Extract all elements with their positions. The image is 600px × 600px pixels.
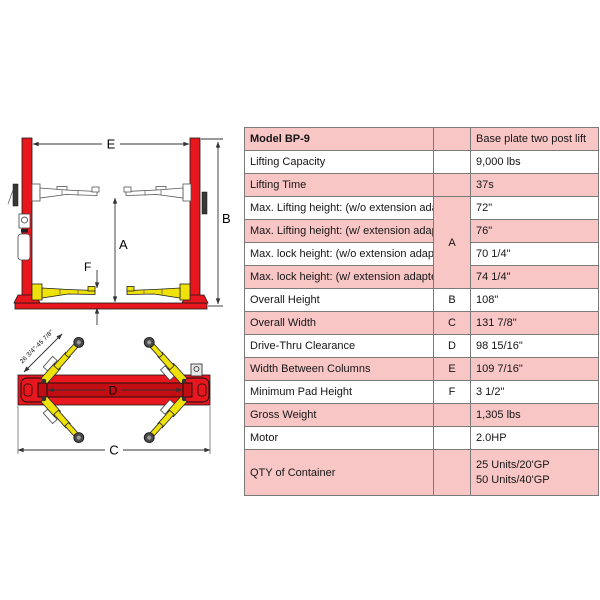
spec-label-cell: Max. Lifting height: (w/o extension adap… <box>245 197 434 220</box>
right-pad-raised <box>124 187 131 192</box>
top-view-drawing: D C 26 3/4"-45 7/8" <box>18 329 210 458</box>
right-carriage-lowered <box>180 284 190 300</box>
base-plate <box>15 303 207 309</box>
spec-ref-cell-a: A <box>434 197 471 289</box>
spec-label-cell: Max. Lifting height: (w/ extension adapt… <box>245 220 434 243</box>
spec-value-cell: 9,000 lbs <box>471 151 599 174</box>
table-row: Width Between Columns E 109 7/16" <box>245 358 599 381</box>
table-row: Minimum Pad Height F 3 1/2" <box>245 381 599 404</box>
power-unit-top-view <box>191 364 202 376</box>
spec-label-cell: Overall Height <box>245 289 434 312</box>
spec-value-cell: 2.0HP <box>471 427 599 450</box>
spec-value-cell: 25 Units/20'GP 50 Units/40'GP <box>471 450 599 496</box>
spec-value-cell: 131 7/8" <box>471 312 599 335</box>
table-row: Lifting Time 37s <box>245 174 599 197</box>
left-arm-raised <box>40 188 97 198</box>
dim-label-c: C <box>109 443 118 458</box>
dimension-a: A <box>115 198 128 302</box>
dim-label-d: D <box>109 384 118 398</box>
qty-line-2: 50 Units/40'GP <box>476 473 593 488</box>
dimension-b: B <box>201 139 231 306</box>
table-row: Max. Lifting height: (w/o extension adap… <box>245 197 599 220</box>
control-box <box>19 214 30 228</box>
lowered-arms <box>32 284 190 300</box>
spec-ref-cell <box>434 174 471 197</box>
spec-ref-cell: C <box>434 312 471 335</box>
spec-label-cell: Overall Width <box>245 312 434 335</box>
left-arm-lowered <box>42 288 95 298</box>
spec-ref-cell <box>434 151 471 174</box>
model-name-cell: Model BP-9 <box>245 128 434 151</box>
dim-label-b: B <box>222 211 231 226</box>
spec-label-cell: Minimum Pad Height <box>245 381 434 404</box>
spec-value-cell: 76" <box>471 220 599 243</box>
table-row-header: Model BP-9 Base plate two post lift <box>245 128 599 151</box>
right-carriage-raised <box>183 184 191 201</box>
control-box-connector <box>21 229 28 233</box>
table-row: Lifting Capacity 9,000 lbs <box>245 151 599 174</box>
qty-line-1: 25 Units/20'GP <box>476 458 593 473</box>
right-arm-raised <box>126 188 183 198</box>
spec-value-cell: 37s <box>471 174 599 197</box>
front-view-drawing: E B A F <box>8 137 231 326</box>
spec-ref-cell <box>434 450 471 496</box>
spec-label-cell: Lifting Capacity <box>245 151 434 174</box>
table-row: Drive-Thru Clearance D 98 15/16" <box>245 335 599 358</box>
right-column-pad <box>202 192 207 214</box>
power-unit-motor <box>18 234 30 260</box>
table-row: Motor 2.0HP <box>245 427 599 450</box>
dim-label-f: F <box>84 260 91 274</box>
table-row: Max. Lifting height: (w/ extension adapt… <box>245 220 599 243</box>
spec-ref-cell: F <box>434 381 471 404</box>
spec-label-cell: Width Between Columns <box>245 358 434 381</box>
spec-label-cell: Max. lock height: (w/ extension adapter) <box>245 266 434 289</box>
raised-arms <box>32 184 191 201</box>
spec-ref-cell <box>434 404 471 427</box>
model-type-cell: Base plate two post lift <box>471 128 599 151</box>
spec-ref-cell: E <box>434 358 471 381</box>
dimension-e: E <box>33 137 189 152</box>
spec-value-cell: 108" <box>471 289 599 312</box>
spec-ref-cell <box>434 427 471 450</box>
spec-label-cell: Drive-Thru Clearance <box>245 335 434 358</box>
left-pad-lowered <box>88 287 95 292</box>
right-arm-lowered <box>127 288 180 298</box>
lock-release-lever <box>8 190 13 204</box>
table-row: Max. lock height: (w/o extension adapter… <box>245 243 599 266</box>
table-row: Max. lock height: (w/ extension adapter)… <box>245 266 599 289</box>
table-row: Overall Height B 108" <box>245 289 599 312</box>
lift-technical-drawing: E B A F <box>0 118 240 500</box>
table-row: Overall Width C 131 7/8" <box>245 312 599 335</box>
spec-ref-cell: B <box>434 289 471 312</box>
spec-value-cell: 98 15/16" <box>471 335 599 358</box>
left-carriage-lowered <box>32 284 42 300</box>
table-row: Gross Weight 1,305 lbs <box>245 404 599 427</box>
dim-label-e: E <box>107 137 116 152</box>
spec-table: Model BP-9 Base plate two post lift Lift… <box>244 127 599 496</box>
spec-value-cell: 109 7/16" <box>471 358 599 381</box>
left-column-pad <box>13 184 18 206</box>
spec-label-cell: Max. lock height: (w/o extension adapter… <box>245 243 434 266</box>
right-column <box>190 138 200 303</box>
spec-ref-cell: D <box>434 335 471 358</box>
spec-label-cell: Gross Weight <box>245 404 434 427</box>
spec-label-cell: QTY of Container <box>245 450 434 496</box>
dim-label-a: A <box>119 237 128 252</box>
spec-value-cell: 74 1/4" <box>471 266 599 289</box>
spec-value-cell: 72" <box>471 197 599 220</box>
spec-value-cell: 1,305 lbs <box>471 404 599 427</box>
spec-label-cell: Lifting Time <box>245 174 434 197</box>
spec-ref-cell <box>434 128 471 151</box>
spec-sheet-page: E B A F <box>0 0 600 600</box>
table-row: QTY of Container 25 Units/20'GP 50 Units… <box>245 450 599 496</box>
spec-label-cell: Motor <box>245 427 434 450</box>
left-pad-raised <box>92 187 99 192</box>
spec-value-cell: 3 1/2" <box>471 381 599 404</box>
right-pad-lowered <box>127 287 134 292</box>
left-carriage-raised <box>32 184 40 201</box>
spec-value-cell: 70 1/4" <box>471 243 599 266</box>
